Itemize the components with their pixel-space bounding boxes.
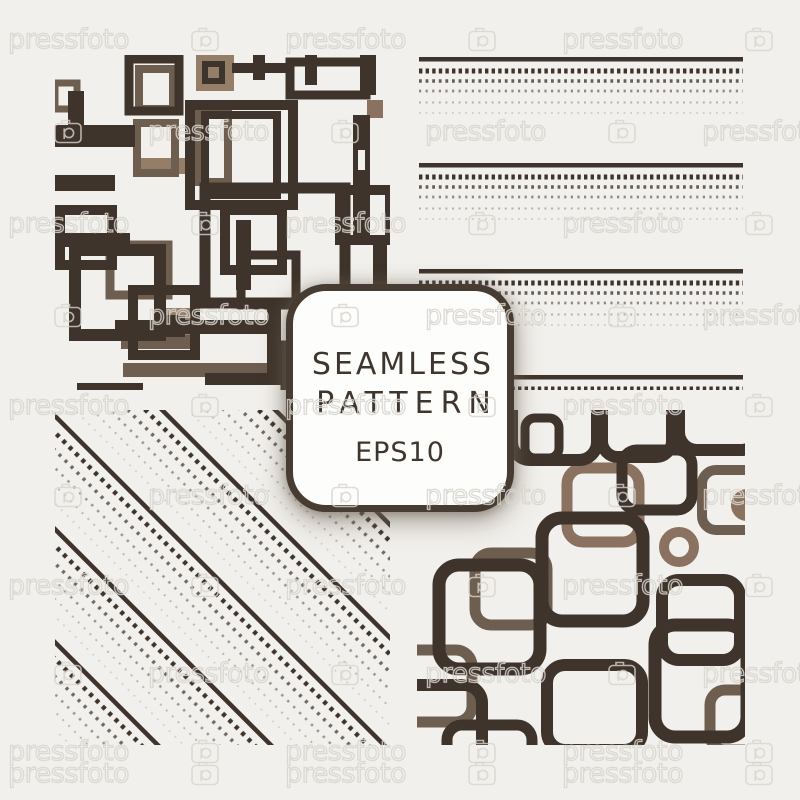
watermark-text: pressfoto — [285, 26, 406, 53]
badge-title-line1: SEAMLESS — [293, 350, 510, 380]
watermark-text: pressfoto — [285, 760, 406, 787]
pressfoto-camera-icon — [744, 759, 774, 787]
pressfoto-camera-icon — [190, 759, 220, 787]
pressfoto-camera-icon — [744, 209, 774, 237]
pressfoto-camera-icon — [744, 391, 774, 419]
stock-pattern-preview: SEAMLESS PATTERN EPS10 pressfotopressfot… — [0, 0, 800, 800]
badge-title-line2: PATTERN — [293, 389, 514, 419]
pressfoto-camera-icon — [744, 737, 774, 765]
watermark-text: pressfoto — [8, 760, 129, 787]
pressfoto-camera-icon — [744, 571, 774, 599]
seamless-pattern-badge: SEAMLESS PATTERN EPS10 — [286, 284, 514, 512]
watermark-text: pressfoto — [8, 26, 129, 53]
pressfoto-camera-icon — [190, 25, 220, 53]
watermark-text: pressfoto — [562, 26, 683, 53]
pressfoto-camera-icon — [467, 759, 497, 787]
watermark-text: pressfoto — [562, 760, 683, 787]
pressfoto-camera-icon — [467, 25, 497, 53]
pressfoto-camera-icon — [744, 25, 774, 53]
badge-subtitle: EPS10 — [293, 439, 507, 466]
